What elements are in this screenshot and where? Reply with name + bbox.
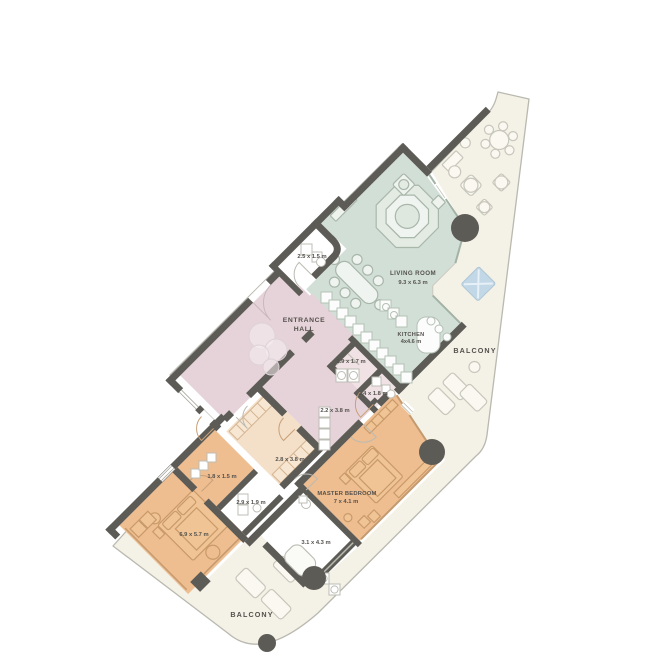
svg-text:2.9 x 1.9 m: 2.9 x 1.9 m [236, 500, 265, 506]
svg-text:6.9 x 5.7 m: 6.9 x 5.7 m [179, 532, 208, 538]
svg-text:BALCONY: BALCONY [230, 610, 273, 619]
svg-text:1.8 x 1.5 m: 1.8 x 1.5 m [207, 474, 236, 480]
svg-text:3.1 x 4.3 m: 3.1 x 4.3 m [301, 540, 330, 546]
svg-text:LIVING ROOM: LIVING ROOM [390, 270, 436, 277]
svg-text:9.3 x 6.3 m: 9.3 x 6.3 m [398, 280, 427, 286]
svg-text:BALCONY: BALCONY [453, 346, 496, 355]
svg-text:KITCHEN: KITCHEN [398, 332, 425, 338]
svg-text:2.4 x 1.8 m: 2.4 x 1.8 m [358, 391, 387, 397]
svg-text:1.9 x 1.7 m: 1.9 x 1.7 m [336, 359, 365, 365]
svg-text:7 x 4.1 m: 7 x 4.1 m [334, 499, 359, 505]
svg-text:4x4.6 m: 4x4.6 m [401, 339, 422, 345]
svg-text:MASTER BEDROOM: MASTER BEDROOM [317, 491, 376, 497]
svg-text:HALL: HALL [294, 326, 315, 333]
svg-text:2.8 x 3.8 m: 2.8 x 3.8 m [275, 457, 304, 463]
svg-text:2.2 x 3.8 m: 2.2 x 3.8 m [320, 408, 349, 414]
svg-text:2.5 x 1.5 m: 2.5 x 1.5 m [297, 254, 326, 260]
svg-text:ENTRANCE: ENTRANCE [283, 317, 326, 324]
